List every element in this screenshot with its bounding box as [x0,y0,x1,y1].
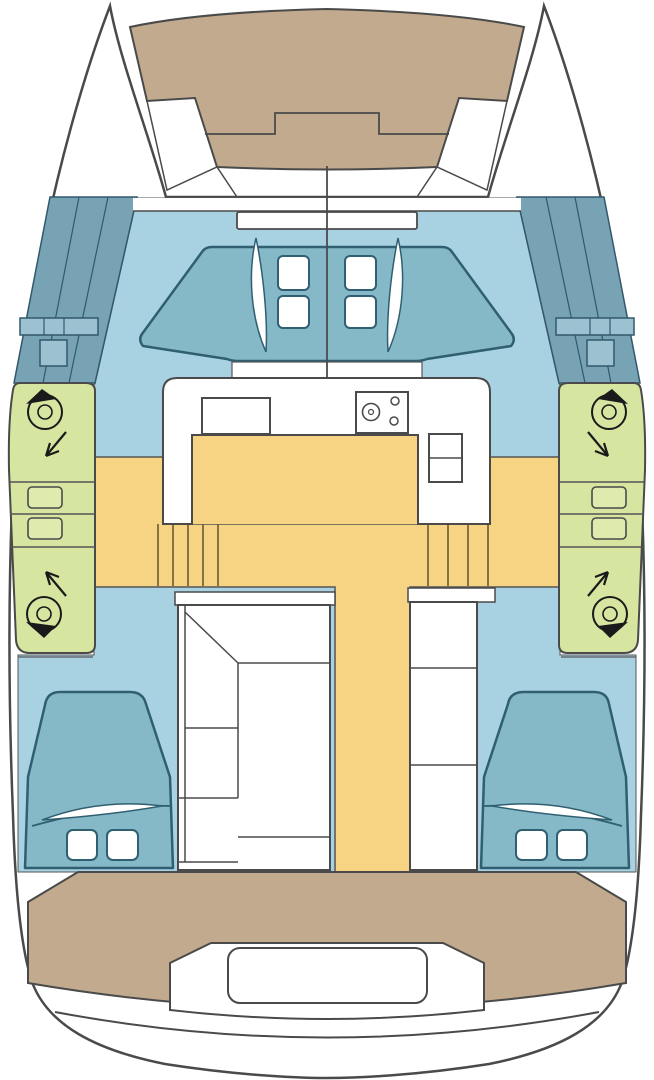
starboard-side-deck [559,383,645,653]
forward-hatch-3 [345,256,376,290]
forward-hatch-1 [278,256,309,290]
galley-fridge [429,434,462,482]
port-head-room [178,605,330,870]
starboard-pillow-1 [516,830,547,860]
forward-hatch-2 [278,296,309,328]
port-deck-hatch [40,340,67,366]
starboard-deck-hatch [587,340,614,366]
foredeck-sunpad [130,9,524,170]
starboard-head-bulkhead [408,588,495,602]
port-berth [25,692,173,868]
deck-plan-svg [0,0,654,1080]
galley-inner-floor [192,435,418,524]
starboard-aft-cabin [481,692,629,868]
stove-top [356,392,408,433]
starboard-deck-window-2 [592,518,626,539]
port-side-deck [9,383,95,653]
starboard-deck-window-1 [592,487,626,508]
galley-stove [356,392,408,433]
aft-bench-cushion [228,948,427,1003]
starboard-pillow-2 [557,830,587,860]
forward-hatch-4 [345,296,376,328]
catamaran-deck-plan [0,0,654,1080]
galley-sink [202,398,270,434]
starboard-head-room [410,602,477,870]
port-pillow-2 [107,830,138,860]
port-head [175,592,335,870]
port-pillow-1 [67,830,97,860]
starboard-deck-hatch-row [556,318,634,335]
port-deck-window-1 [28,487,62,508]
starboard-berth [481,692,629,868]
port-aft-cabin [25,692,173,868]
port-head-bulkhead [175,592,335,605]
port-deck-hatch-row [20,318,98,335]
port-deck-window-2 [28,518,62,539]
